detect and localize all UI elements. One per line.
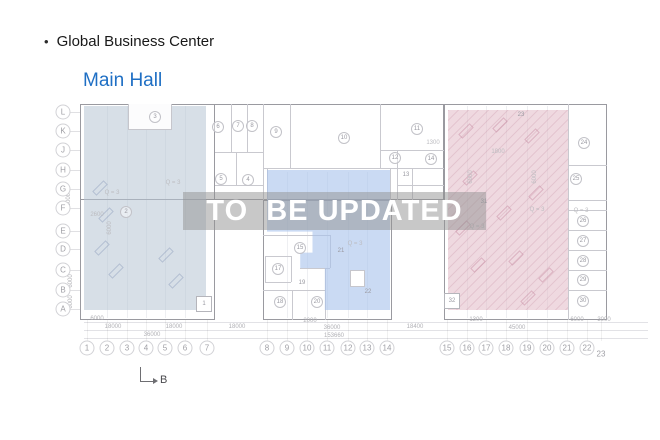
dimension-label: 18400 [407, 324, 424, 330]
grid-row-label: K [56, 124, 71, 139]
wall [568, 270, 607, 271]
dimension-label: 1300 [469, 317, 482, 323]
grid-column-label: 7 [200, 341, 215, 356]
room-number: 18 [274, 296, 286, 308]
room-number: 11 [411, 123, 423, 135]
grid-column-tick [506, 320, 507, 341]
grid-row-line [69, 290, 80, 291]
room-number: 15 [294, 242, 306, 254]
wall [236, 152, 237, 185]
grid-column-tick [527, 320, 528, 341]
grid-column-label: 22 [580, 341, 595, 356]
dimension-line [84, 330, 648, 331]
dimension-label: 45000 [509, 325, 526, 331]
dimension-label: 18000 [166, 324, 183, 330]
arrow-line [140, 381, 153, 382]
room-number: 7 [232, 120, 244, 132]
grid-column-label: 19 [520, 341, 535, 356]
room-number: 30 [577, 295, 589, 307]
plan-annotation: Q = 3 [574, 208, 589, 214]
grid-row-line [69, 309, 80, 310]
grid-column-label: 16 [460, 341, 475, 356]
section-label: B [160, 374, 167, 386]
grid-column-label: 18 [499, 341, 514, 356]
room-number: 17 [272, 263, 284, 275]
wall [265, 256, 291, 257]
room-number: 23 [518, 112, 525, 118]
grid-column-tick [486, 320, 487, 341]
grid-column-label: 14 [380, 341, 395, 356]
grid-column-label: 9 [280, 341, 295, 356]
grid-column-tick [207, 320, 208, 341]
wall [290, 104, 291, 168]
room-number: 28 [577, 255, 589, 267]
grid-column-label: 23 [595, 348, 608, 361]
room-number: 3 [149, 111, 161, 123]
grid-row-label: A [56, 302, 71, 317]
grid-column-tick [447, 320, 448, 341]
room-number: 25 [570, 173, 582, 185]
grid-column-tick [467, 320, 468, 341]
grid-column-label: 4 [139, 341, 154, 356]
grid-row-label: D [56, 242, 71, 257]
grid-row-line [69, 249, 80, 250]
wall [263, 168, 444, 169]
room-number: 4 [242, 174, 254, 186]
plan-annotation: Q = 3 [166, 180, 181, 186]
grid-column-label: 10 [300, 341, 315, 356]
grid-column-label: 2 [100, 341, 115, 356]
arrow-line [140, 367, 141, 382]
dimension-label: 3000 [597, 317, 610, 323]
grid-column-label: 20 [540, 341, 555, 356]
room-number: 14 [425, 153, 437, 165]
grid-column-label: 12 [341, 341, 356, 356]
room-number: 5 [215, 173, 227, 185]
wall [265, 256, 266, 282]
grid-column-label: 6 [178, 341, 193, 356]
dimension-label: 153660 [324, 333, 344, 339]
grid-column-label: 11 [320, 341, 335, 356]
dimension-line [84, 322, 648, 323]
grid-column-label: 8 [260, 341, 275, 356]
grid-column-label: 3 [120, 341, 135, 356]
plan-annotation: 1800 [491, 149, 504, 155]
wall [568, 165, 607, 166]
room-number: 8 [246, 120, 258, 132]
grid-column-tick [587, 320, 588, 341]
wall [568, 200, 607, 201]
wall [380, 150, 444, 151]
room-number: 20 [311, 296, 323, 308]
room-number: 6 [212, 121, 224, 133]
grid-column-tick [127, 320, 128, 341]
grid-row-line [69, 208, 80, 209]
wall [263, 104, 264, 200]
plan-annotation: 1300 [426, 140, 439, 146]
grid-column-tick [567, 320, 568, 341]
plan-annotation: Q = 3 [530, 207, 545, 213]
room-number: 19 [299, 280, 306, 286]
dimension-label: 6000 [570, 317, 583, 323]
wall [568, 290, 607, 291]
grid-column-tick [185, 320, 186, 341]
grid-column-tick [387, 320, 388, 341]
room-number: 24 [578, 137, 590, 149]
grid-row-line [69, 270, 80, 271]
grid-column-label: 5 [158, 341, 173, 356]
wall [397, 185, 444, 186]
plan-annotation: Q = 3 [348, 241, 363, 247]
wall [568, 230, 607, 231]
grid-row-label: B [56, 283, 71, 298]
wall [215, 185, 263, 186]
grid-row-label: C [56, 263, 71, 278]
dimension-label: 18000 [229, 324, 246, 330]
room-number: 21 [338, 248, 345, 254]
grid-column-tick [367, 320, 368, 341]
grid-column-tick [87, 320, 88, 341]
room-number: 22 [365, 289, 372, 295]
dimension-label: 36000 [324, 325, 341, 331]
wall [380, 104, 381, 168]
plan-annotation: 6000 [532, 170, 538, 183]
grid-row-label: H [56, 163, 71, 178]
grid-column-label: 17 [479, 341, 494, 356]
dimension-label: 18000 [105, 324, 122, 330]
plan-annotation: 6000 [107, 221, 113, 234]
floor-plan: LKJHGFEDCBA 1234567891011121314151617181… [0, 0, 660, 440]
grid-column-tick [601, 320, 602, 341]
room-number: 29 [577, 274, 589, 286]
room-number: 27 [577, 235, 589, 247]
room-number: 26 [577, 215, 589, 227]
grid-column-label: 15 [440, 341, 455, 356]
wall [568, 250, 607, 251]
grid-row-label: J [56, 143, 71, 158]
dimension-line [84, 338, 648, 339]
grid-column-tick [547, 320, 548, 341]
grid-row-label: E [56, 224, 71, 239]
grid-column-tick [348, 320, 349, 341]
arrow-head-icon [153, 378, 158, 384]
plan-annotation: Q = 3 [105, 190, 120, 196]
grid-row-label: F [56, 201, 71, 216]
plan-annotation: 2600 [90, 212, 103, 218]
watermark-banner: TO BE UPDATED [183, 192, 486, 230]
wall [215, 152, 263, 153]
grid-row-line [69, 112, 80, 113]
room-number: 12 [389, 152, 401, 164]
room-number: 2 [120, 206, 132, 218]
wall [265, 282, 291, 283]
grid-column-tick [267, 320, 268, 341]
room-number: 1 [196, 296, 212, 312]
grid-column-label: 13 [360, 341, 375, 356]
room-number: 10 [338, 132, 350, 144]
grid-column-tick [287, 320, 288, 341]
wall [568, 104, 569, 320]
grid-row-line [69, 231, 80, 232]
dimension-label: 2000 [303, 318, 316, 324]
grid-column-label: 21 [560, 341, 575, 356]
grid-column-label: 1 [80, 341, 95, 356]
dimension-label: 36000 [144, 332, 161, 338]
dimension-label: 6000 [90, 316, 103, 322]
small-room-box [350, 270, 365, 287]
wall [263, 290, 325, 291]
wall [292, 290, 293, 320]
grid-row-line [69, 150, 80, 151]
grid-row-label: G [56, 182, 71, 197]
wall [291, 256, 292, 282]
grid-row-line [69, 131, 80, 132]
room-number: 9 [270, 126, 282, 138]
room-number: 13 [403, 172, 410, 178]
grid-row-line [69, 170, 80, 171]
plan-annotation: 6000 [468, 170, 474, 183]
grid-row-label: L [56, 105, 71, 120]
room-number: 32 [444, 293, 460, 309]
